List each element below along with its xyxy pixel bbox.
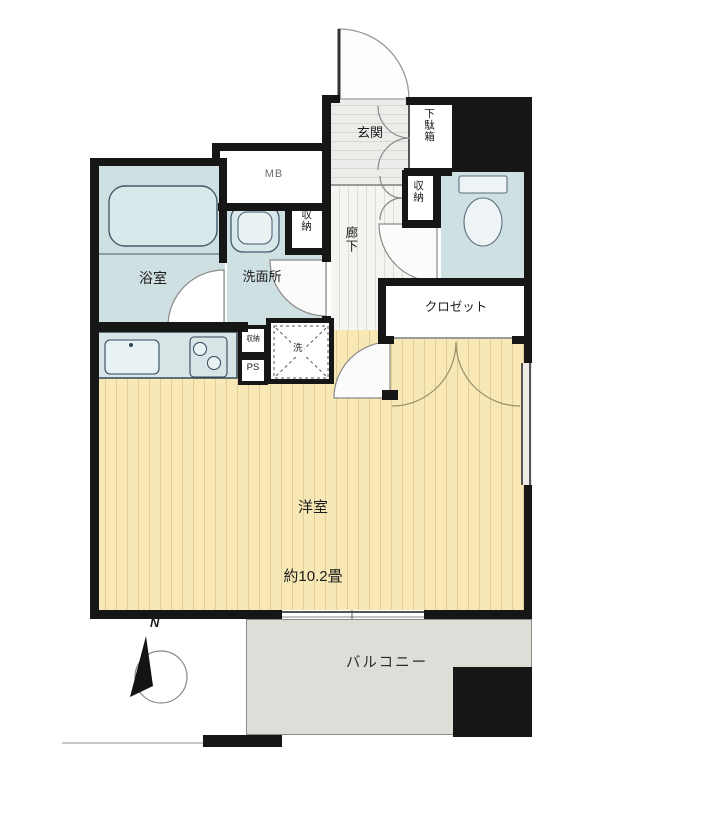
wall	[433, 168, 441, 226]
wall	[382, 390, 398, 400]
main-room-name: 洋室	[238, 496, 388, 519]
compass-circle	[135, 651, 187, 703]
wall	[402, 220, 441, 228]
entrance-step-line	[331, 184, 404, 186]
entrance-area	[331, 100, 408, 186]
balcony-label: バルコニー	[292, 655, 482, 672]
wall	[524, 172, 532, 363]
wall	[378, 336, 394, 344]
wall	[524, 485, 532, 610]
floor-plan: 浴室 洗面所 MB 収納 玄関 下駄箱 収納 廊下 クロゼット 収納 PS 洗 …	[0, 0, 722, 813]
bathroom-label: 浴室	[118, 270, 188, 286]
wall	[90, 158, 99, 618]
wall	[378, 278, 532, 286]
wall	[212, 143, 331, 151]
main-room-label: 洋室 約10.2畳	[238, 449, 388, 635]
wall	[512, 336, 524, 344]
wall	[322, 316, 331, 322]
bathroom-area	[95, 163, 225, 326]
washroom-storage-label: 収納	[300, 209, 312, 232]
wall	[424, 610, 532, 619]
shoe-cabinet-divider	[408, 100, 410, 168]
wall-block	[452, 97, 532, 172]
wall	[322, 95, 340, 103]
wall-block	[203, 735, 282, 747]
small-storage-label: 収納	[241, 334, 265, 343]
pipe-space-label: PS	[239, 363, 267, 374]
main-room-size: 約10.2畳	[238, 565, 388, 588]
hallway-storage-label: 収納	[412, 180, 424, 203]
toilet-door-swing	[404, 226, 434, 278]
compass-label: N	[150, 616, 159, 631]
front-door-swing	[339, 29, 409, 99]
wall	[322, 95, 331, 262]
shoe-cabinet-label: 下駄箱	[423, 108, 435, 143]
wall	[406, 97, 454, 105]
wall-block	[453, 667, 532, 737]
wall	[378, 278, 386, 344]
entrance-label: 玄関	[334, 126, 406, 141]
washroom-label: 洗面所	[224, 270, 300, 285]
closet-opening-line	[392, 337, 514, 339]
toilet-area	[441, 172, 524, 278]
closet-label: クロゼット	[388, 300, 524, 314]
wall	[218, 203, 331, 211]
meter-box-label: MB	[244, 168, 304, 181]
north-arrow-icon	[130, 636, 153, 697]
wall	[404, 168, 452, 176]
washer-label: 洗	[292, 344, 304, 355]
wall	[90, 322, 248, 332]
property-line	[62, 742, 203, 744]
wall	[90, 158, 227, 166]
hallway-label: 廊下	[343, 226, 357, 253]
